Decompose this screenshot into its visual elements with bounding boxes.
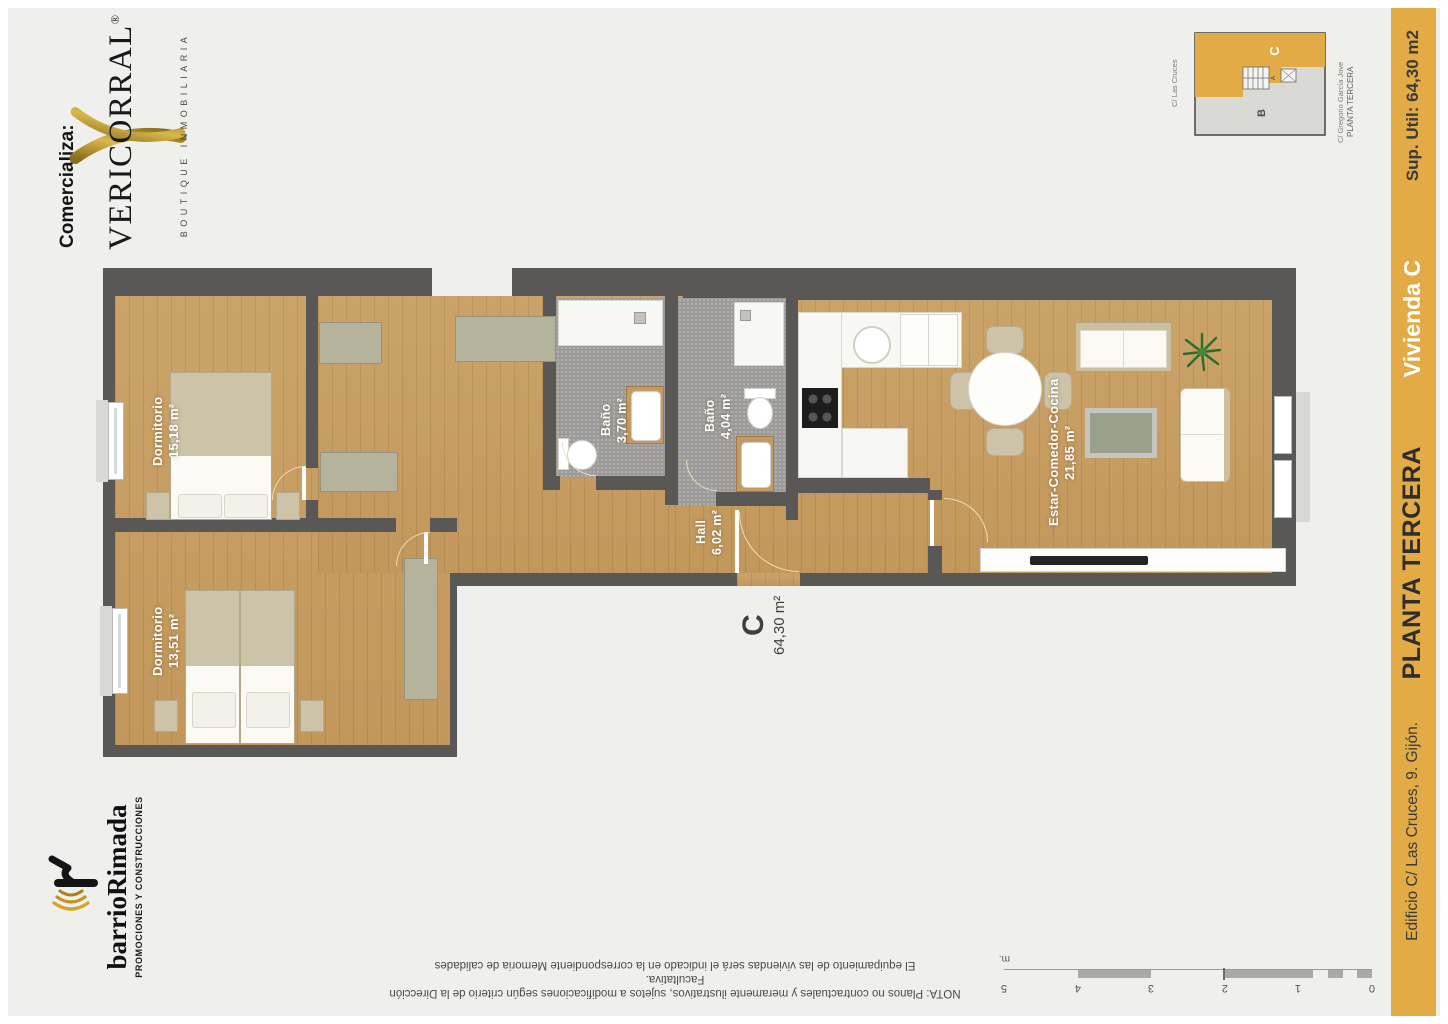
window2-sill — [100, 606, 112, 696]
wall-between-bedrooms-a — [115, 518, 396, 532]
wardrobe-corridor-2 — [455, 316, 556, 362]
plant-icon — [1178, 328, 1226, 376]
kitchen-counter-bottom — [842, 428, 908, 478]
room-name: Baño — [598, 392, 614, 448]
wardrobe-corridor-3 — [320, 452, 398, 492]
wall-bath2-bottom — [716, 492, 786, 506]
room-label-dormitorio2: Dormitorio 13,51 m² — [150, 593, 182, 689]
wall-kitchen-hall — [798, 478, 930, 493]
room-area: 3,70 m² — [614, 392, 630, 448]
bed2-pillow-left — [192, 692, 236, 728]
wall-bedroom1-right-a — [306, 296, 318, 468]
scale-tick-2: 2 — [1222, 982, 1228, 994]
kitchen-sink — [853, 326, 891, 364]
wardrobe-corridor-1 — [319, 322, 382, 364]
toilet2-bowl — [747, 397, 773, 429]
nightstand-2a — [154, 700, 178, 732]
shower2-drain-icon — [740, 310, 751, 321]
note-line-1: NOTA: Planos no contractuales y merament… — [375, 972, 975, 1000]
scale-tick-1: 1 — [1295, 982, 1301, 994]
chaise-divider — [1181, 434, 1223, 435]
bed1-pillow-left — [178, 494, 222, 518]
developer-logo: barrioRimada PROMOCIONES Y CONSTRUCCIONE… — [42, 789, 214, 985]
wall-bath2-kitchen — [786, 296, 798, 520]
room-name: Baño — [702, 388, 718, 444]
window3-frame-b — [1274, 460, 1292, 518]
scale-seg — [1298, 970, 1313, 978]
room-name: Hall — [693, 503, 709, 561]
scale-baseline — [1004, 969, 1372, 970]
room-area: 15,18 m² — [166, 383, 182, 479]
developer-name: barrioRimada — [102, 789, 133, 985]
window3-frame-a — [1274, 396, 1292, 454]
room-area: 13,51 m² — [166, 593, 182, 689]
sink1 — [631, 391, 661, 441]
room-label-hall: Hall 6,02 m² — [693, 503, 725, 561]
wall-hall-living-b — [928, 546, 942, 573]
note-line-2: El equipamiento de las viviendas será el… — [375, 958, 975, 972]
scale-numbers: 0 1 2 3 4 5 — [1000, 980, 1372, 994]
developer-tagline: PROMOCIONES Y CONSTRUCCIONES — [134, 789, 144, 985]
wall-bath1-bottom-b — [596, 476, 665, 490]
room-area: 6,02 m² — [709, 503, 725, 561]
room-label-bath2: Baño 4,04 m² — [702, 388, 734, 444]
room-name: Dormitorio — [150, 383, 166, 479]
room-area: 4,04 m² — [718, 388, 734, 444]
scale-bar: 0 1 2 3 4 5 m. — [1000, 946, 1372, 994]
scale-tick-5: 5 — [1001, 982, 1007, 994]
wall-bath1-bottom-a — [543, 476, 560, 490]
wall-between-bedrooms-b — [430, 518, 457, 532]
shower1 — [558, 300, 663, 346]
disclaimer-note: NOTA: Planos no contractuales y merament… — [375, 958, 975, 1000]
nightstand-2b — [300, 700, 324, 732]
room-name: Estar-Comedor-Cocina — [1046, 380, 1062, 526]
wall-hall-living-a — [928, 490, 942, 500]
rug — [1085, 408, 1157, 458]
scale-tick-mark — [1223, 968, 1225, 980]
unit-area-value: 64,30 m² — [771, 582, 789, 668]
scale-seg — [1357, 970, 1372, 978]
scale-rule — [1004, 968, 1372, 978]
unit-letter: C — [737, 582, 771, 668]
sofa-cushion-divider — [1123, 330, 1124, 368]
door-leaf-living — [930, 500, 934, 546]
kitchen-cabinet — [900, 314, 958, 366]
bed2-pillow-right — [246, 692, 290, 728]
room-label-estar: Estar-Comedor-Cocina 21,85 m² — [1046, 380, 1078, 526]
dining-chair-top — [986, 326, 1024, 354]
cooktop — [802, 388, 838, 428]
chaise-sofa — [1180, 388, 1230, 482]
bed1-pillow-right — [224, 494, 268, 518]
scale-seg — [1078, 970, 1151, 978]
window3-sill — [1296, 392, 1310, 522]
room-area: 21,85 m² — [1062, 380, 1078, 526]
scale-tick-3: 3 — [1148, 982, 1154, 994]
window1-sill — [96, 400, 108, 482]
wall-between-baths — [665, 296, 678, 505]
room-label-bath1: Baño 3,70 m² — [598, 392, 630, 448]
scale-tick-4: 4 — [1075, 982, 1081, 994]
tv-icon — [1030, 556, 1148, 565]
scale-tick-0: 0 — [1369, 982, 1375, 994]
scale-seg — [1328, 970, 1343, 978]
dining-chair-bottom — [986, 428, 1024, 456]
facade-notch — [432, 268, 512, 296]
sink2 — [741, 442, 771, 488]
bed2-divider — [239, 590, 241, 744]
unit-area-label: C 64,30 m² — [737, 582, 789, 668]
shower1-drain-icon — [634, 312, 646, 324]
plan-sheet: Comercializa: VERICORRAL® BOUTIQUE INMOB… — [0, 0, 1448, 1024]
room-name: Dormitorio — [150, 593, 166, 689]
wall-bedroom1-right-b — [306, 500, 318, 520]
dining-table — [968, 352, 1042, 426]
scale-seg — [1225, 970, 1298, 978]
wardrobe-bedroom2 — [404, 558, 438, 700]
window1-glass — [114, 408, 117, 474]
barriorimada-mark-icon — [42, 855, 100, 919]
door-leaf-entrance — [735, 510, 739, 573]
nightstand-1a — [146, 492, 170, 520]
window2-glass — [118, 614, 121, 688]
floor-plan: Dormitorio 15,18 m² Dormitorio 13,51 m² … — [0, 0, 1448, 1024]
room-label-dormitorio1: Dormitorio 15,18 m² — [150, 383, 182, 479]
kitchen-cabinet-divider — [928, 314, 929, 366]
scale-unit-label: m. — [999, 953, 1010, 964]
